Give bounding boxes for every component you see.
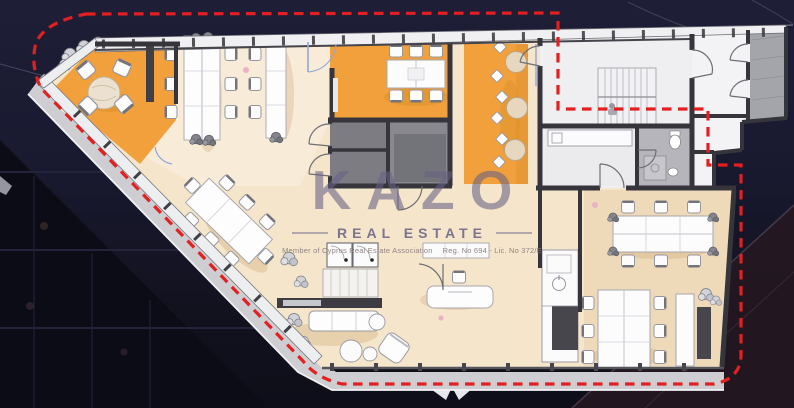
reception-desk bbox=[427, 286, 493, 308]
phone-booth-2 bbox=[353, 243, 378, 267]
sofa bbox=[309, 311, 379, 331]
bench-desk-row-2 bbox=[266, 38, 286, 138]
floorplan-screenshot: KAZO REAL ESTATE Member of Cyprus Real E… bbox=[0, 0, 794, 408]
cabinet-row bbox=[423, 243, 489, 258]
office-floorplan-drawing bbox=[0, 0, 794, 408]
storage-cabinet bbox=[697, 307, 711, 359]
stairwell bbox=[598, 68, 656, 126]
coffee-table bbox=[340, 340, 362, 362]
kitchenette bbox=[542, 250, 578, 362]
phone-booth-1 bbox=[327, 243, 352, 267]
